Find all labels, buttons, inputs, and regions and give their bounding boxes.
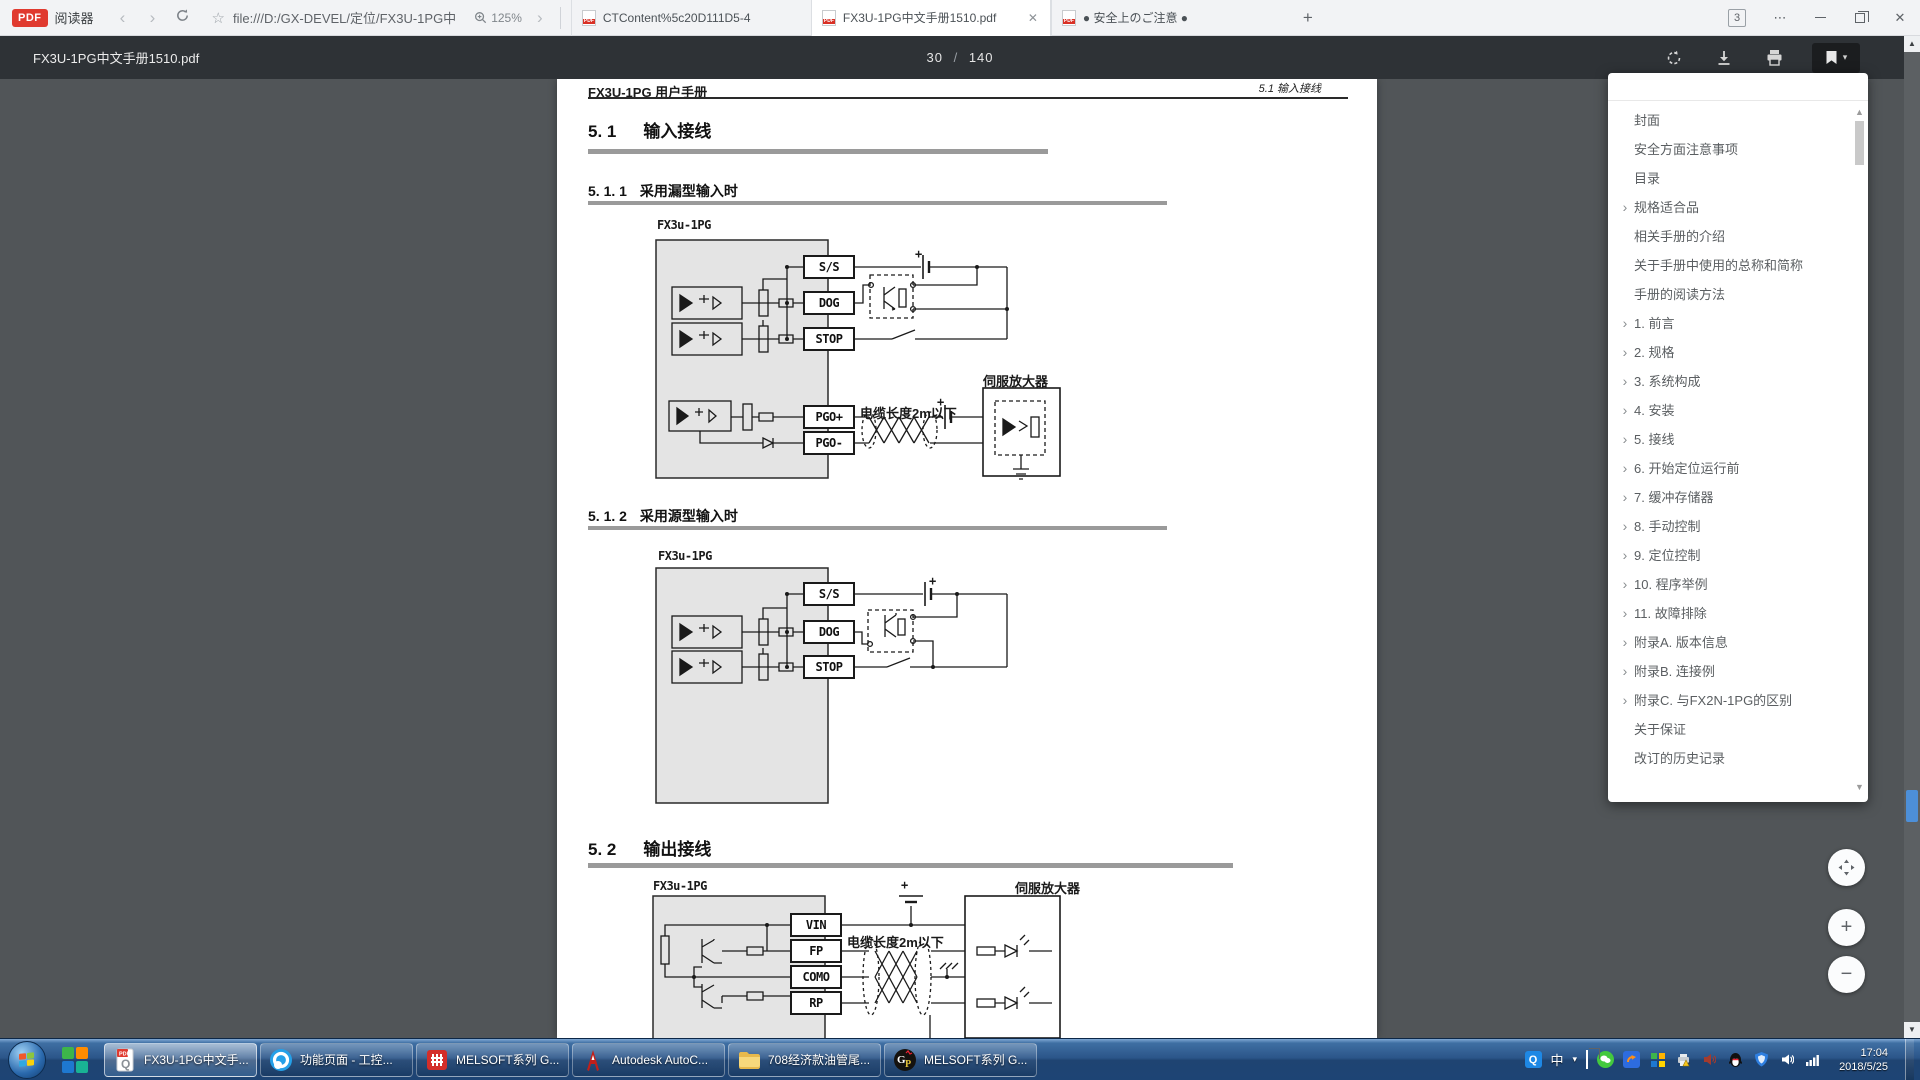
section-5-2-heading: 5. 2输出接线: [588, 835, 711, 860]
toc-item-ch2[interactable]: ›2. 规格: [1608, 337, 1852, 366]
toc-item-related-manuals[interactable]: 相关手册的介绍: [1608, 221, 1852, 250]
taskbar: PDFQ FX3U-1PG中文手... 功能页面 - 工控... MELSOFT…: [0, 1038, 1920, 1080]
cable-length-note: 电缆长度2m以下: [860, 403, 957, 422]
svg-text:P: P: [905, 1059, 911, 1070]
system-tray: Q 中 ▾: [1525, 1039, 1920, 1080]
tab-ctcontent[interactable]: CTContent%5c20D111D5-4: [571, 0, 811, 36]
menu-icon[interactable]: ⋯: [1760, 0, 1800, 36]
toc-item-terms[interactable]: 关于手册中使用的总称和简称: [1608, 250, 1852, 279]
toc-item-ch7[interactable]: ›7. 缓冲存储器: [1608, 482, 1852, 511]
servo-amplifier-label: 伺服放大器: [1015, 878, 1080, 897]
brand-label: 阅读器: [55, 8, 94, 27]
minimize-button[interactable]: [1800, 0, 1840, 36]
bookmarks-panel-header: [1608, 73, 1868, 101]
bookmarks-button[interactable]: ▾: [1812, 43, 1860, 73]
terminal-stop: STOP: [803, 327, 855, 351]
new-tab-button[interactable]: +: [1291, 0, 1325, 36]
toc-scrollbar-thumb[interactable]: [1855, 121, 1864, 165]
page-separator: /: [954, 50, 959, 65]
svg-text:Q: Q: [121, 1057, 130, 1071]
page-zoom-control[interactable]: 125%: [474, 11, 522, 25]
melsoft-gx-app-icon: GP: [893, 1048, 917, 1072]
taskbar-app-pdf-reader[interactable]: PDFQ FX3U-1PG中文手...: [104, 1043, 257, 1077]
servo-amplifier-label: 伺服放大器: [983, 371, 1048, 390]
taskbar-app-melsoft-gx[interactable]: MELSOFT系列 G...: [416, 1043, 569, 1077]
caret-down-icon: ▾: [1843, 52, 1848, 63]
terminal-ss: S/S: [803, 582, 855, 606]
toc-item-ch11[interactable]: ›11. 故障排除: [1608, 598, 1852, 627]
toc-item-ch10[interactable]: ›10. 程序举例: [1608, 569, 1852, 598]
taskbar-clock[interactable]: 17:04 2018/5/25: [1839, 1046, 1888, 1074]
browser-brand: PDF 阅读器: [0, 8, 108, 27]
zoom-out-button[interactable]: −: [1828, 956, 1865, 993]
terminal-pgo-minus: PGO-: [803, 431, 855, 455]
scrollbar-thumb[interactable]: [1906, 790, 1918, 822]
tab-strip: CTContent%5c20D111D5-4 FX3U-1PG中文手册1510.…: [571, 0, 1325, 36]
pdf-doc-icon: [822, 10, 836, 26]
toc-item-ch8[interactable]: ›8. 手动控制: [1608, 511, 1852, 540]
toc-scroll-down-icon[interactable]: ▼: [1853, 780, 1866, 794]
security-shield-tray-icon[interactable]: [1753, 1051, 1770, 1068]
running-header-right: 5.1 输入接线: [1259, 80, 1321, 96]
section-rule: [588, 149, 1048, 154]
main-scrollbar[interactable]: ▲ ▼: [1904, 36, 1920, 1038]
zoom-in-button[interactable]: +: [1828, 909, 1865, 946]
audio-device-tray-icon[interactable]: [1701, 1051, 1718, 1068]
toc-item-ch1[interactable]: ›1. 前言: [1608, 308, 1852, 337]
toc-item-ch6[interactable]: ›6. 开始定位运行前: [1608, 453, 1852, 482]
section-rule: [588, 863, 1233, 868]
bookmark-star-icon[interactable]: ☆: [212, 9, 225, 27]
pdf-doc-icon: [582, 10, 596, 26]
bookmarks-list: 封面 安全方面注意事项 目录 ›规格适合品 相关手册的介绍 关于手册中使用的总称…: [1608, 105, 1852, 772]
taskbar-app-browser[interactable]: 功能页面 - 工控...: [260, 1043, 413, 1077]
url-text[interactable]: file:///D:/GX-DEVEL/定位/FX3U-1PG中: [233, 8, 456, 27]
sink-input-wiring-diagram: [647, 209, 1207, 489]
printer-warning-tray-icon[interactable]: [1675, 1051, 1692, 1068]
toc-item-safety[interactable]: 安全方面注意事项: [1608, 134, 1852, 163]
zoom-level: 125%: [491, 11, 522, 25]
toc-item-how-to-read[interactable]: 手册的阅读方法: [1608, 279, 1852, 308]
network-signal-tray-icon[interactable]: [1805, 1051, 1822, 1068]
windows-logo-icon: [19, 1052, 35, 1068]
toc-item-ch4[interactable]: ›4. 安装: [1608, 395, 1852, 424]
toc-scrollbar[interactable]: ▲ ▼: [1853, 105, 1866, 794]
browser-titlebar: PDF 阅读器 ‹ › ☆ file:///D:/GX-DEVEL/定位/FX3…: [0, 0, 1920, 36]
show-desktop-button[interactable]: [1905, 1039, 1914, 1080]
section-5-1-2-heading: 5. 1. 2采用源型输入时: [588, 506, 738, 526]
toc-item-appendix-b[interactable]: ›附录B. 连接例: [1608, 656, 1852, 685]
address-chevron-icon[interactable]: ›: [530, 8, 550, 28]
ime-caret-icon[interactable]: ▾: [1573, 1054, 1578, 1065]
language-bar-icon[interactable]: [1586, 1051, 1588, 1069]
page-current[interactable]: 30: [926, 50, 942, 65]
autocad-app-icon: [581, 1048, 605, 1072]
terminal-stop: STOP: [803, 655, 855, 679]
pdf-reader-app-icon: PDFQ: [113, 1048, 137, 1072]
toc-scroll-up-icon[interactable]: ▲: [1853, 105, 1866, 119]
pdf-doc-icon: [1062, 10, 1076, 26]
section-rule: [588, 526, 1167, 530]
qq-penguin-tray-icon[interactable]: [1727, 1051, 1744, 1068]
address-bar[interactable]: ☆ file:///D:/GX-DEVEL/定位/FX3U-1PG中 125% …: [212, 8, 550, 28]
rotate-icon[interactable]: [1662, 46, 1686, 70]
page-total: 140: [969, 50, 994, 65]
tab-title: ● 安全上のご注意 ●: [1083, 9, 1281, 26]
section-rule: [588, 201, 1167, 205]
taskbar-app-autocad[interactable]: Autodesk AutoC...: [572, 1043, 725, 1077]
scroll-down-icon[interactable]: ▼: [1904, 1022, 1920, 1038]
forward-icon[interactable]: ›: [138, 8, 168, 28]
back-icon[interactable]: ‹: [108, 8, 138, 28]
tab-fx3u-manual[interactable]: FX3U-1PG中文手册1510.pdf ✕: [811, 0, 1051, 36]
terminal-rp: RP: [790, 991, 842, 1015]
bookmark-icon: [1825, 50, 1838, 65]
toc-item-warranty[interactable]: 关于保证: [1608, 714, 1852, 743]
toc-item-compliance[interactable]: ›规格适合品: [1608, 192, 1852, 221]
tab-count-badge[interactable]: 3: [1728, 9, 1746, 27]
terminal-como: COMO: [790, 965, 842, 989]
clock-time: 17:04: [1839, 1046, 1888, 1060]
cable-length-note: 电缆长度2m以下: [847, 932, 944, 951]
pdf-reader-logo-icon: PDF: [12, 9, 48, 27]
output-wiring-diagram: [647, 874, 1147, 1038]
section-5-1-heading: 5. 1输入接线: [588, 117, 711, 142]
tab-title: FX3U-1PG中文手册1510.pdf: [843, 9, 1019, 26]
toc-item-appendix-c[interactable]: ›附录C. 与FX2N-1PG的区别: [1608, 685, 1852, 714]
toc-item-contents[interactable]: 目录: [1608, 163, 1852, 192]
tab-safety-notes[interactable]: ● 安全上のご注意 ●: [1051, 0, 1291, 36]
fit-page-button[interactable]: [1828, 849, 1865, 886]
ime-indicator[interactable]: 中: [1551, 1050, 1564, 1069]
qq-browser-tray-icon[interactable]: Q: [1525, 1051, 1542, 1068]
divider: [560, 7, 561, 29]
download-icon[interactable]: [1712, 46, 1736, 70]
terminal-dog: DOG: [803, 620, 855, 644]
restore-button[interactable]: [1840, 0, 1880, 36]
toc-item-appendix-a[interactable]: ›附录A. 版本信息: [1608, 627, 1852, 656]
software-manager-tray-icon[interactable]: [1649, 1051, 1666, 1068]
refresh-icon[interactable]: [168, 8, 198, 28]
quick-launch-icon[interactable]: [60, 1045, 90, 1075]
desktop: PDF 阅读器 ‹ › ☆ file:///D:/GX-DEVEL/定位/FX3…: [0, 0, 1920, 1080]
magnifier-icon: [474, 11, 487, 24]
terminal-fp: FP: [790, 939, 842, 963]
close-tab-icon[interactable]: ✕: [1026, 11, 1040, 25]
pdf-document-title: FX3U-1PG中文手册1510.pdf: [33, 48, 199, 67]
clock-date: 2018/5/25: [1839, 1060, 1888, 1074]
header-rule: [588, 97, 1348, 99]
taskbar-app-melsoft-gx2[interactable]: GP MELSOFT系列 G...: [884, 1043, 1037, 1077]
window-controls: 3 ⋯ ✕: [1728, 0, 1920, 36]
scroll-up-icon[interactable]: ▲: [1904, 36, 1920, 52]
taskbar-app-folder[interactable]: 708经济款油管尾...: [728, 1043, 881, 1077]
taskbar-apps: PDFQ FX3U-1PG中文手... 功能页面 - 工控... MELSOFT…: [104, 1043, 1037, 1077]
terminal-ss: S/S: [803, 255, 855, 279]
terminal-dog: DOG: [803, 291, 855, 315]
toc-item-ch9[interactable]: ›9. 定位控制: [1608, 540, 1852, 569]
page-indicator: 30 / 140: [926, 50, 993, 65]
toc-item-ch3[interactable]: ›3. 系统构成: [1608, 366, 1852, 395]
start-button[interactable]: [8, 1041, 46, 1079]
terminal-vin: VIN: [790, 913, 842, 937]
terminal-pgo-plus: PGO+: [803, 405, 855, 429]
toc-item-revision-history[interactable]: 改订的历史记录: [1608, 743, 1852, 772]
pdf-page: FX3U-1PG 用户手册 5.1 输入接线 5. 1输入接线 5. 1. 1采…: [557, 79, 1377, 1038]
section-5-1-1-heading: 5. 1. 1采用漏型输入时: [588, 181, 738, 201]
pdf-tools: ▾: [1662, 43, 1860, 73]
update-arrow-tray-icon[interactable]: [1623, 1051, 1640, 1068]
melsoft-app-icon: [425, 1048, 449, 1072]
close-button[interactable]: ✕: [1880, 0, 1920, 36]
folder-icon: [737, 1048, 761, 1072]
print-icon[interactable]: [1762, 46, 1786, 70]
toc-item-cover[interactable]: 封面: [1608, 105, 1852, 134]
volume-tray-icon[interactable]: [1779, 1051, 1796, 1068]
tab-title: CTContent%5c20D111D5-4: [603, 11, 801, 25]
browser-app-icon: [269, 1048, 293, 1072]
toc-item-ch5[interactable]: ›5. 接线: [1608, 424, 1852, 453]
bookmarks-panel: 封面 安全方面注意事项 目录 ›规格适合品 相关手册的介绍 关于手册中使用的总称…: [1608, 73, 1868, 802]
